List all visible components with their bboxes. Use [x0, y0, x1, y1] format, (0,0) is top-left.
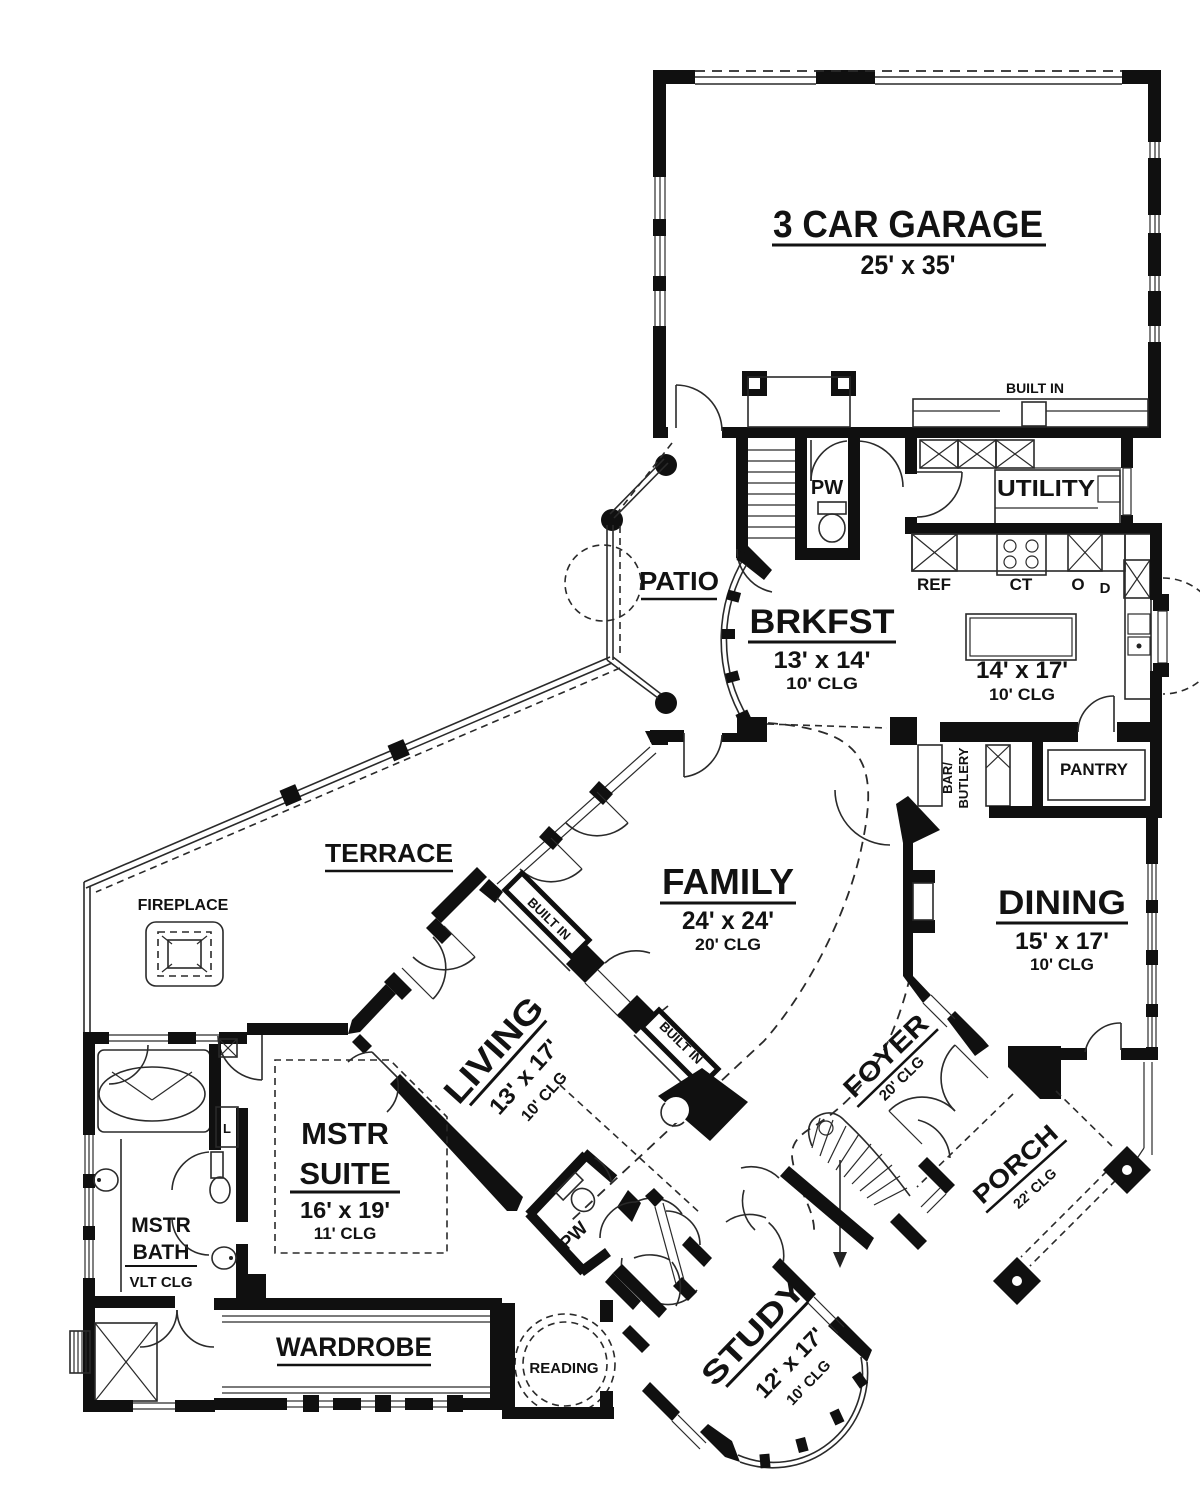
svg-text:SUITE: SUITE — [299, 1156, 390, 1191]
svg-text:CT: CT — [1010, 575, 1033, 594]
svg-text:L: L — [223, 1121, 231, 1136]
svg-text:MSTR: MSTR — [301, 1116, 389, 1151]
svg-text:MSTR: MSTR — [131, 1214, 191, 1237]
svg-text:BAR/: BAR/ — [940, 762, 955, 794]
svg-text:UTILITY: UTILITY — [997, 475, 1095, 501]
svg-text:11' CLG: 11' CLG — [314, 1224, 377, 1243]
svg-text:REF: REF — [917, 575, 951, 594]
svg-text:24' x 24': 24' x 24' — [682, 907, 774, 935]
svg-text:PATIO: PATIO — [639, 566, 719, 596]
svg-text:READING: READING — [529, 1360, 598, 1377]
svg-text:BUILT IN: BUILT IN — [1006, 380, 1064, 396]
svg-text:PANTRY: PANTRY — [1060, 760, 1129, 779]
svg-text:16' x 19': 16' x 19' — [300, 1197, 390, 1223]
svg-text:20' CLG: 20' CLG — [695, 935, 761, 954]
svg-text:10' CLG: 10' CLG — [786, 674, 858, 693]
svg-text:VLT CLG: VLT CLG — [129, 1274, 192, 1291]
svg-text:25' x 35': 25' x 35' — [861, 250, 956, 280]
svg-text:DINING: DINING — [998, 884, 1126, 922]
svg-text:WARDROBE: WARDROBE — [276, 1332, 432, 1362]
svg-text:TERRACE: TERRACE — [325, 838, 453, 868]
svg-text:13' x 14': 13' x 14' — [774, 647, 871, 674]
svg-text:10' CLG: 10' CLG — [989, 685, 1055, 704]
svg-text:PW: PW — [811, 477, 843, 499]
svg-text:14' x 17': 14' x 17' — [976, 657, 1068, 684]
svg-text:O: O — [1071, 575, 1084, 594]
svg-text:BUTLERY: BUTLERY — [956, 747, 971, 808]
svg-text:FIREPLACE: FIREPLACE — [138, 897, 229, 914]
svg-text:10' CLG: 10' CLG — [1030, 955, 1094, 974]
svg-text:15' x 17': 15' x 17' — [1015, 928, 1109, 955]
svg-text:FAMILY: FAMILY — [662, 861, 794, 902]
svg-text:3 CAR GARAGE: 3 CAR GARAGE — [773, 204, 1043, 246]
svg-text:BRKFST: BRKFST — [750, 603, 895, 641]
svg-text:D: D — [1100, 580, 1111, 597]
svg-text:BATH: BATH — [133, 1241, 190, 1264]
